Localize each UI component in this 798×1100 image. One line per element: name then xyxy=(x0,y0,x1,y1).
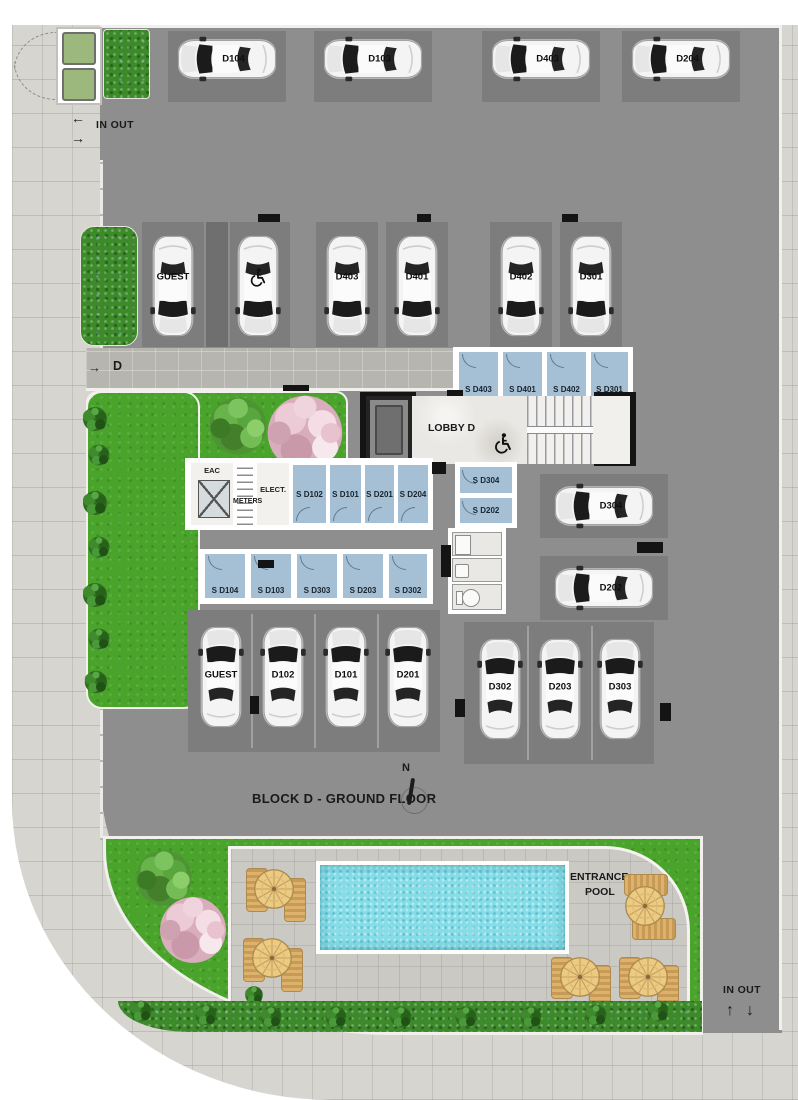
stall-label: D303 xyxy=(609,681,632,692)
sink xyxy=(455,564,469,578)
storage-room: S D402 xyxy=(545,350,588,399)
bush xyxy=(86,534,112,560)
column-marker xyxy=(562,214,578,222)
car-top-view: D201 xyxy=(382,618,434,736)
hedge-planter xyxy=(80,226,138,346)
shaft-x-icon xyxy=(198,480,230,518)
eac-label: EAC xyxy=(191,466,233,475)
washroom xyxy=(452,558,502,582)
wheelchair-icon xyxy=(492,432,514,454)
wheelchair-icon xyxy=(248,267,268,287)
stall-label: D302 xyxy=(489,681,512,692)
storage-room: S D203 xyxy=(341,552,385,600)
toilet xyxy=(462,589,480,607)
ramp-arrow: → xyxy=(88,360,101,375)
storage-room: S D201 xyxy=(363,463,396,525)
storage-room: S D102 xyxy=(291,463,328,525)
pool-entrance-label-line2: POOL xyxy=(585,886,615,898)
bush xyxy=(258,1004,284,1030)
stall-label: D102 xyxy=(272,669,295,680)
car-top-view: D302 xyxy=(474,630,526,748)
bush xyxy=(583,1002,609,1028)
car-top-view: D104 xyxy=(172,34,282,84)
storage-room: S D204 xyxy=(396,463,430,525)
car-top-view: D204 xyxy=(626,34,736,84)
bush xyxy=(80,488,110,518)
elevator-car xyxy=(375,405,403,455)
stall-label: GUEST xyxy=(205,669,238,680)
column-marker xyxy=(637,542,663,553)
storage-room: S D401 xyxy=(501,350,544,399)
stall-label: D202 xyxy=(600,583,623,594)
stall-label: D201 xyxy=(397,669,420,680)
stall-label: D403 xyxy=(336,272,359,283)
toilet-room xyxy=(452,584,502,610)
entrance-gate xyxy=(56,27,102,105)
storage-room: S D303 xyxy=(295,552,339,600)
stall-label: D104 xyxy=(222,54,245,65)
umbrella xyxy=(250,936,294,980)
tree-pink xyxy=(155,892,231,968)
bush xyxy=(518,1004,544,1030)
stall-divider xyxy=(377,614,379,748)
car-top-view: D304 xyxy=(546,481,662,531)
stall-label: D204 xyxy=(676,54,699,65)
stair-landing xyxy=(593,396,630,464)
lobby-label: LOBBY D xyxy=(428,422,475,434)
swimming-pool xyxy=(316,861,569,954)
stall-divider xyxy=(527,626,529,760)
wall-segment xyxy=(441,545,451,577)
storage-room: S D304 xyxy=(458,465,514,495)
storage-room: S D104 xyxy=(203,552,247,600)
umbrella xyxy=(623,884,667,928)
boundary-wall-top xyxy=(100,25,782,28)
storage-room: S D101 xyxy=(328,463,363,525)
bottom-entrance-out-arrow: ↓ xyxy=(746,1002,754,1020)
car-top-view: D301 xyxy=(565,230,617,342)
bush xyxy=(80,404,110,434)
bush xyxy=(80,580,110,610)
elect-room: ELECT. xyxy=(255,461,291,527)
shower-tray xyxy=(455,535,471,555)
eac-room: EAC xyxy=(189,461,235,527)
top-entrance-label: IN OUT xyxy=(96,119,134,131)
stall-label: D103 xyxy=(368,54,391,65)
bottom-entrance-in-arrow: ↑ xyxy=(726,1002,734,1020)
column-marker xyxy=(660,703,671,721)
stall-divider xyxy=(251,614,253,748)
car-top-view: D102 xyxy=(257,618,309,736)
stall-label: D301 xyxy=(580,272,603,283)
wall-segment xyxy=(432,462,446,474)
car-top-view: D101 xyxy=(320,618,372,736)
pool-entrance-label-line1: ENTRANCE xyxy=(570,871,628,883)
storage-room: S D403 xyxy=(457,350,500,399)
car-top-view-accessible xyxy=(232,230,284,342)
gate-panel xyxy=(62,32,96,65)
stall-label: D304 xyxy=(600,501,623,512)
car-top-view: GUEST xyxy=(147,230,199,342)
compass-north-label: N xyxy=(402,762,410,774)
car-top-view: D202 xyxy=(546,563,662,613)
car-top-view: D403 xyxy=(321,230,373,342)
wall-segment xyxy=(258,560,274,568)
wc-block xyxy=(448,528,506,614)
stall-label: D401 xyxy=(406,272,429,283)
storage-room: S D302 xyxy=(387,552,429,600)
ramp-label: D xyxy=(113,359,122,373)
site-plan: ← → IN OUT D104 D103 D403 D204 GUEST D40… xyxy=(0,0,798,1100)
bush xyxy=(82,668,110,696)
bush xyxy=(193,1002,219,1028)
wall-segment xyxy=(630,394,636,466)
stall-divider xyxy=(314,614,316,748)
meters-strip xyxy=(235,461,255,527)
elect-label: ELECT. xyxy=(257,485,289,494)
car-top-view: D403 xyxy=(486,34,596,84)
bush xyxy=(86,626,112,652)
storage-room: S D202 xyxy=(458,496,514,525)
toilet-tank xyxy=(456,591,463,605)
shower-room xyxy=(452,532,502,556)
stair-landing-rail xyxy=(527,426,593,434)
column-marker xyxy=(258,214,280,222)
bush xyxy=(128,998,154,1024)
bush xyxy=(86,442,112,468)
stall-label: D101 xyxy=(335,669,358,680)
umbrella xyxy=(558,955,602,999)
bush xyxy=(388,1004,414,1030)
bottom-entrance-label: IN OUT xyxy=(723,984,761,996)
meters-label: METERS xyxy=(233,498,262,505)
gate-panel xyxy=(62,68,96,101)
umbrella xyxy=(626,955,670,999)
accessible-aisle xyxy=(206,222,228,347)
car-top-view: GUEST xyxy=(195,618,247,736)
bush xyxy=(323,1004,349,1030)
car-top-view: D303 xyxy=(594,630,646,748)
compass-circle xyxy=(401,787,428,814)
walkway xyxy=(86,348,454,390)
stall-label: D403 xyxy=(536,54,559,65)
umbrella xyxy=(252,867,296,911)
staircase xyxy=(527,396,593,464)
stall-label: D203 xyxy=(549,681,572,692)
bush xyxy=(453,1004,479,1030)
stall-label: GUEST xyxy=(157,272,190,283)
column-marker xyxy=(417,214,431,222)
column-marker xyxy=(455,699,465,717)
elevator xyxy=(366,396,412,464)
bush xyxy=(645,998,671,1024)
stall-divider xyxy=(591,626,593,760)
top-entrance-out-arrow: → xyxy=(71,130,85,146)
car-top-view: D401 xyxy=(391,230,443,342)
boundary-wall-right xyxy=(779,25,782,1030)
car-top-view: D103 xyxy=(318,34,428,84)
stall-label: D402 xyxy=(510,272,533,283)
top-entrance-in-arrow: ← xyxy=(71,110,85,126)
hedge-planter xyxy=(103,29,150,99)
car-top-view: D402 xyxy=(495,230,547,342)
car-top-view: D203 xyxy=(534,630,586,748)
